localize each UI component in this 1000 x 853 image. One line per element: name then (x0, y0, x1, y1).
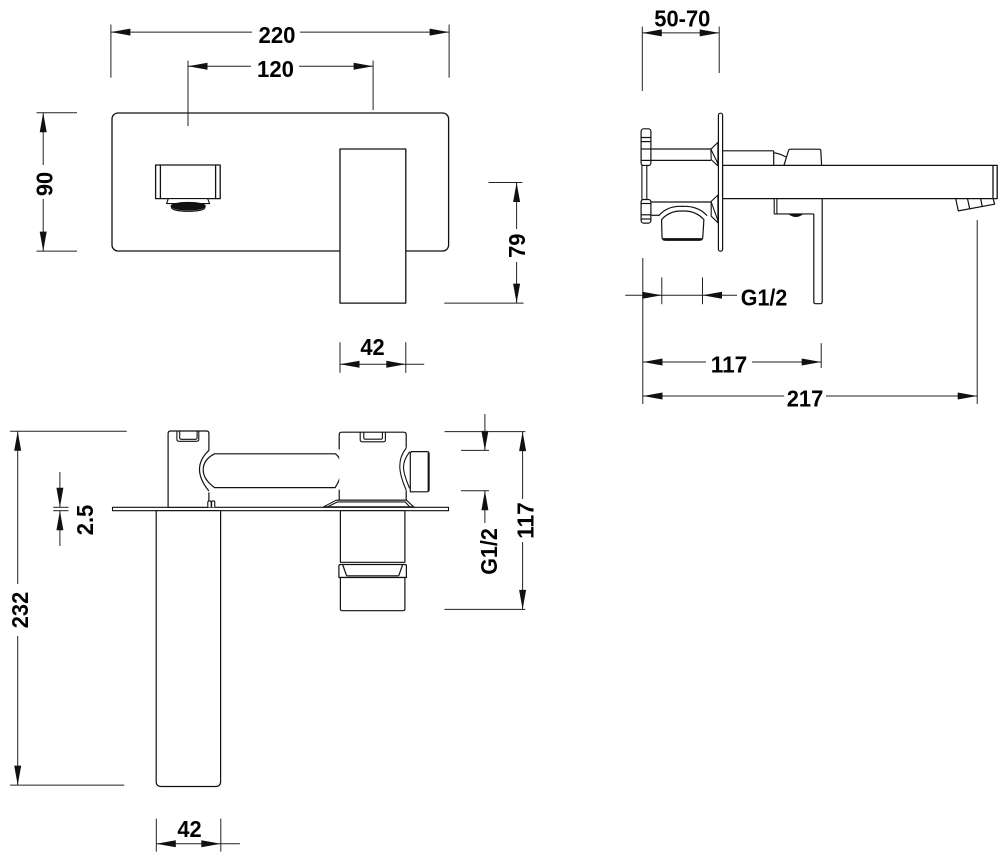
svg-text:79: 79 (504, 234, 530, 258)
svg-text:42: 42 (360, 334, 384, 360)
svg-text:50-70: 50-70 (654, 6, 710, 32)
svg-text:120: 120 (257, 56, 294, 82)
svg-text:117: 117 (513, 502, 539, 539)
svg-text:2.5: 2.5 (72, 505, 98, 536)
svg-text:42: 42 (177, 816, 201, 842)
svg-text:220: 220 (259, 22, 296, 48)
svg-text:232: 232 (7, 592, 33, 629)
svg-text:217: 217 (787, 386, 824, 412)
svg-text:G1/2: G1/2 (476, 528, 502, 575)
svg-text:117: 117 (711, 352, 748, 378)
svg-text:90: 90 (32, 172, 58, 196)
svg-text:G1/2: G1/2 (741, 284, 788, 310)
